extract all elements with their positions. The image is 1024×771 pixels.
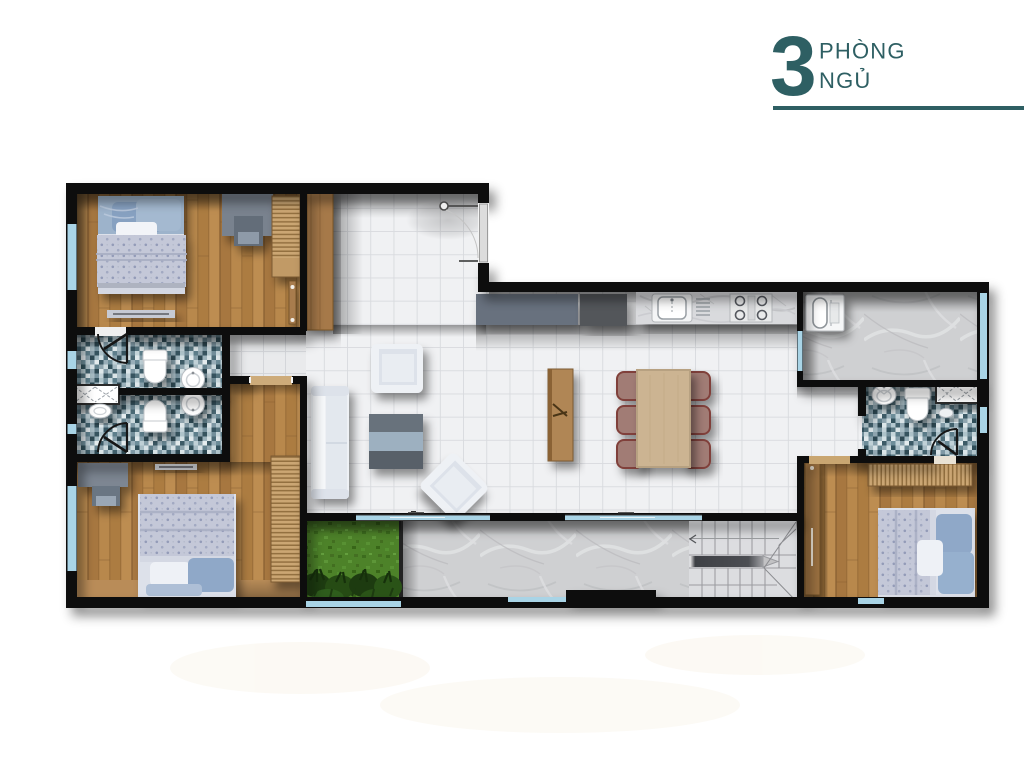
svg-text:NGỦ: NGỦ — [819, 68, 872, 93]
svg-text:3: 3 — [770, 19, 817, 113]
svg-text:PHÒNG: PHÒNG — [819, 39, 906, 64]
